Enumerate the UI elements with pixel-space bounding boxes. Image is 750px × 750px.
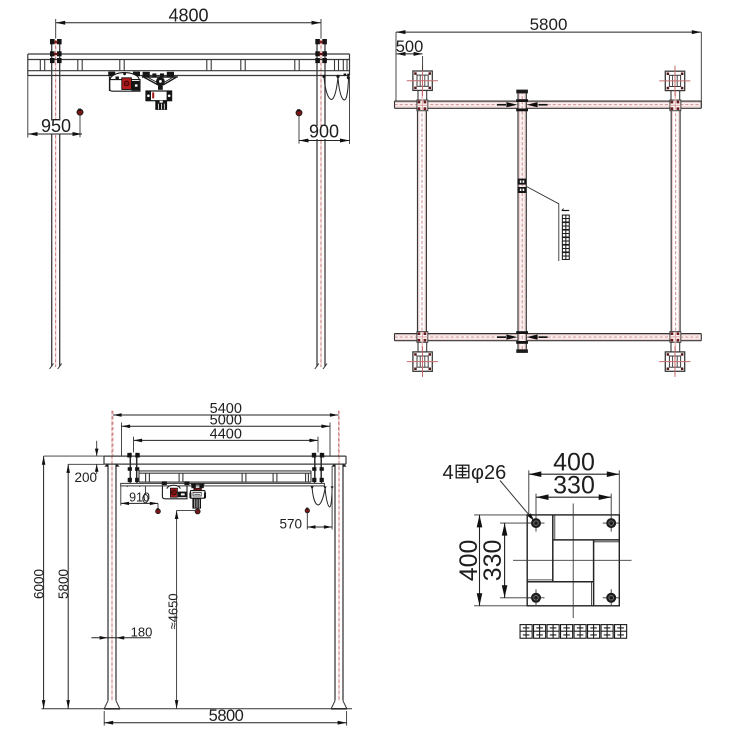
svg-text:330: 330 bbox=[553, 472, 595, 500]
svg-text:330: 330 bbox=[479, 540, 507, 582]
svg-text:200: 200 bbox=[74, 470, 97, 485]
svg-text:570: 570 bbox=[279, 517, 302, 532]
svg-text:5800: 5800 bbox=[530, 15, 568, 34]
svg-text:4800: 4800 bbox=[168, 6, 208, 26]
svg-text:900: 900 bbox=[309, 121, 339, 141]
svg-text:6000: 6000 bbox=[31, 569, 46, 599]
svg-text:4400: 4400 bbox=[210, 427, 242, 443]
svg-text:≈4650: ≈4650 bbox=[165, 593, 180, 629]
svg-text:180: 180 bbox=[131, 624, 153, 639]
svg-text:500: 500 bbox=[396, 38, 424, 56]
svg-text:φ26: φ26 bbox=[471, 462, 506, 484]
svg-text:4: 4 bbox=[443, 462, 454, 484]
svg-text:5800: 5800 bbox=[209, 707, 244, 725]
svg-text:950: 950 bbox=[41, 116, 71, 136]
svg-text:910: 910 bbox=[129, 490, 150, 504]
svg-text:5800: 5800 bbox=[56, 569, 71, 599]
